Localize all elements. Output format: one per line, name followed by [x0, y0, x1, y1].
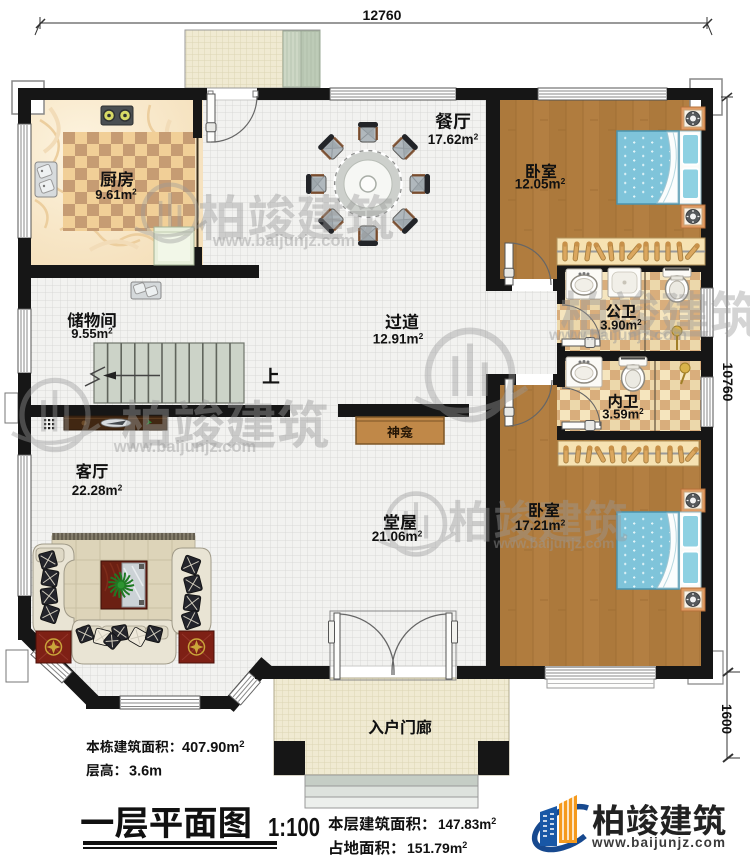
svg-text:147.83m2: 147.83m2 [438, 816, 496, 832]
svg-text:12.91m2: 12.91m2 [373, 331, 424, 347]
svg-text:1:100: 1:100 [268, 812, 320, 842]
svg-text:17.21m2: 17.21m2 [515, 517, 566, 533]
svg-text:17.62m2: 17.62m2 [428, 131, 479, 147]
svg-text:10760: 10760 [720, 363, 736, 402]
svg-text:www.baijunjz.com: www.baijunjz.com [493, 535, 615, 551]
svg-text:www.baijunjz.com: www.baijunjz.com [212, 232, 355, 250]
svg-text:22.28m2: 22.28m2 [72, 482, 123, 498]
svg-text:407.90m2: 407.90m2 [182, 739, 245, 756]
svg-text:3.90m2: 3.90m2 [600, 318, 642, 333]
svg-text:151.79m2: 151.79m2 [407, 840, 467, 856]
svg-text:12.05m2: 12.05m2 [515, 176, 566, 192]
svg-text:21.06m2: 21.06m2 [372, 528, 423, 544]
svg-text:3.59m2: 3.59m2 [602, 407, 644, 422]
svg-text:www.baijunjz.com: www.baijunjz.com [113, 438, 256, 456]
svg-text:9.55m2: 9.55m2 [71, 326, 113, 341]
svg-text:www.baijunjz.com: www.baijunjz.com [591, 835, 726, 850]
svg-text:1600: 1600 [719, 704, 734, 734]
svg-text:3.6m: 3.6m [129, 764, 162, 780]
svg-text:12760: 12760 [363, 7, 402, 23]
svg-text:9.61m2: 9.61m2 [95, 187, 137, 202]
